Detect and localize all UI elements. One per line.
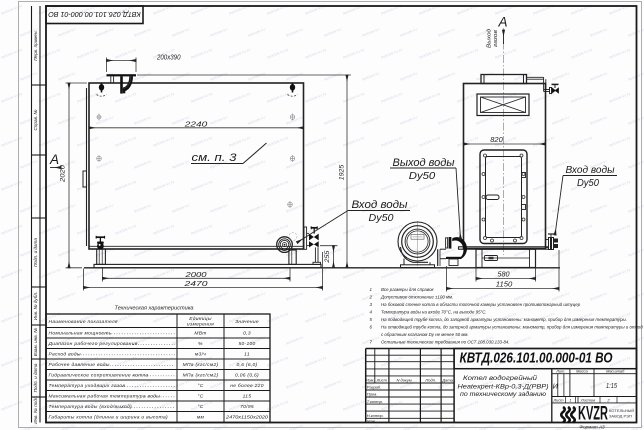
svg-text:см. п. 3: см. п. 3 [192, 152, 238, 164]
svg-text:На отводящей трубе котла, до з: На отводящей трубе котла, до запорной ар… [381, 325, 643, 330]
svg-text:Температура воды на входе 70°: Температура воды на входе 70°С, на выход… [381, 310, 487, 315]
svg-text:Техническая характеристика: Техническая характеристика [115, 306, 194, 312]
svg-text:Heatexpert-КВр-0,3-Д(РВР): Heatexpert-КВр-0,3-Д(РВР) [458, 383, 549, 390]
svg-text:Температура уходящих газов: Температура уходящих газов [49, 383, 126, 389]
svg-text:0,3: 0,3 [243, 331, 251, 337]
svg-text:Пров.: Пров. [367, 392, 378, 397]
svg-text:Dy50: Dy50 [577, 178, 600, 189]
svg-text:Выход: Выход [487, 28, 493, 48]
svg-text:Формат А3: Формат А3 [579, 424, 605, 429]
svg-text:200х390: 200х390 [156, 55, 180, 62]
svg-text:КВТД.026.101.00.000-01 ВО: КВТД.026.101.00.000-01 ВО [48, 10, 141, 19]
svg-text:Диапазон рабочего регулировани: Диапазон рабочего регулирования [48, 341, 138, 347]
svg-text:Расход воды: Расход воды [49, 352, 81, 358]
svg-text:Гидравлическое сопротивление к: Гидравлическое сопротивление котла [49, 373, 149, 379]
svg-text:°С: °С [197, 383, 203, 389]
svg-text:1150: 1150 [496, 280, 513, 289]
svg-text:Подп.: Подп. [425, 377, 436, 382]
svg-text:ЗАВОД РЭП: ЗАВОД РЭП [609, 413, 632, 418]
svg-text:%: % [198, 341, 203, 347]
svg-text:МПа (кгс/см2): МПа (кгс/см2) [183, 362, 219, 368]
svg-text:по техническому заданию: по техническому заданию [460, 390, 546, 398]
svg-text:Вход воды: Вход воды [352, 199, 408, 211]
svg-text:2000: 2000 [184, 270, 207, 279]
svg-text:измерения: измерения [187, 322, 214, 327]
svg-text:Масса: Масса [576, 369, 588, 374]
svg-text:50-100: 50-100 [238, 341, 255, 347]
svg-text:Котел водогрейный: Котел водогрейный [463, 374, 538, 382]
svg-text:А: А [49, 152, 59, 167]
svg-text:Все размеры для справок: Все размеры для справок [381, 287, 435, 292]
svg-text:Единицы: Единицы [189, 316, 212, 322]
svg-text:А: А [497, 15, 507, 30]
svg-text:На подводящей трубе котла, д: На подводящей трубе котла, до запорной а… [381, 317, 627, 322]
svg-text:70/95: 70/95 [240, 404, 254, 410]
svg-text:2240: 2240 [183, 119, 208, 128]
svg-text:Номинальная мощность: Номинальная мощность [49, 331, 112, 337]
svg-text:0,06 (0,6): 0,06 (0,6) [235, 373, 259, 379]
svg-text:1:15: 1:15 [606, 383, 617, 390]
svg-text:Температура воды (вход/выход): Температура воды (вход/выход) [49, 404, 132, 410]
svg-text:Лист: Лист [552, 397, 564, 402]
svg-text:не более 220: не более 220 [230, 383, 263, 389]
svg-text:Допустимое отклонение ±100 мм: Допустимое отклонение ±100 мм. [380, 295, 453, 300]
svg-text:мм: мм [197, 416, 205, 421]
svg-text:Габариты котла (длинна и ширин: Габариты котла (длинна и ширина и высота… [49, 415, 168, 421]
svg-text:2: 2 [369, 295, 373, 300]
svg-text:МПа (кгс/см2): МПа (кгс/см2) [183, 373, 219, 379]
svg-text:Инв. № подл.: Инв. № подл. [33, 395, 38, 424]
svg-text:Листов: Листов [580, 397, 595, 402]
svg-text:2470: 2470 [183, 279, 208, 288]
svg-text:2470х1150х2020: 2470х1150х2020 [225, 415, 268, 421]
svg-text:Изм.: Изм. [366, 377, 375, 382]
svg-text:Значение: Значение [235, 319, 259, 325]
svg-text:11: 11 [244, 352, 250, 358]
svg-text:Лист: Лист [376, 377, 388, 382]
svg-text:Рабочее давление воды: Рабочее давление воды [49, 362, 110, 368]
svg-text:°С: °С [197, 404, 203, 410]
svg-text:МВт: МВт [194, 331, 206, 337]
svg-text:580: 580 [498, 270, 510, 279]
svg-text:На боковой стенке котла в обла: На боковой стенке котла в области топочн… [381, 302, 581, 307]
svg-text:Справ. №: Справ. № [33, 110, 38, 131]
svg-text:И: И [553, 382, 559, 391]
svg-text:с обратным клапаном Dy не мен: с обратным клапаном Dy не менее 50 мм. [381, 332, 469, 337]
svg-text:м3/ч: м3/ч [195, 352, 206, 358]
svg-text:N докум.: N докум. [397, 377, 413, 382]
svg-text:115: 115 [243, 394, 252, 400]
svg-text:KVZR: KVZR [578, 404, 608, 425]
svg-text:0,6 (6,0): 0,6 (6,0) [237, 362, 258, 368]
svg-text:Дата: Дата [441, 377, 453, 382]
svg-text:Утв.: Утв. [367, 418, 376, 423]
svg-text:Взам. инв. №: Взам. инв. № [33, 328, 38, 356]
svg-text:Максимальная рабочая температу: Максимальная рабочая температура воды [49, 394, 161, 400]
svg-text:Dy50: Dy50 [409, 170, 436, 182]
svg-text:Перв. примен.: Перв. примен. [33, 30, 38, 61]
svg-text:КВТД.026.101.00.000-01 ВО: КВТД.026.101.00.000-01 ВО [460, 351, 614, 367]
svg-text:газов: газов [493, 30, 499, 47]
svg-text:Разраб.: Разраб. [367, 385, 381, 390]
svg-text:Подп. и дата: Подп. и дата [33, 238, 38, 267]
svg-text:1925: 1925 [339, 164, 346, 180]
svg-text:Выход воды: Выход воды [393, 157, 455, 169]
svg-text:Н.контр.: Н.контр. [367, 413, 384, 418]
svg-text:255: 255 [324, 250, 331, 264]
svg-text:Вход воды: Вход воды [566, 165, 616, 176]
svg-text:Лит.: Лит. [555, 369, 565, 374]
svg-text:Инв. № дубл.: Инв. № дубл. [33, 292, 38, 320]
svg-text:Остальные технические требован: Остальные технические требования по ОСТ … [381, 340, 510, 345]
svg-text:820: 820 [490, 135, 503, 144]
svg-text:Наименование показателя: Наименование показателя [49, 319, 118, 325]
svg-text:Масштаб: Масштаб [606, 369, 625, 374]
svg-text:КОТЕЛЬНЫЙ: КОТЕЛЬНЫЙ [609, 408, 634, 413]
svg-text:Dy50: Dy50 [369, 212, 394, 224]
svg-text:°С: °С [197, 394, 203, 400]
svg-text:Т.контр.: Т.контр. [367, 399, 383, 404]
svg-text:1: 1 [569, 397, 571, 402]
svg-text:Подп. и дата: Подп. и дата [33, 363, 38, 392]
